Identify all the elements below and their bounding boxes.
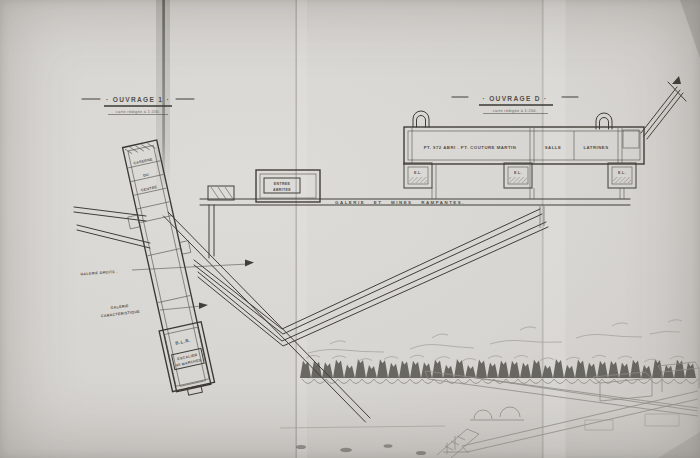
enceinte-chevrons bbox=[194, 206, 548, 346]
gallery-upper bbox=[74, 207, 146, 221]
arrowhead-icon bbox=[245, 260, 254, 267]
tree-silhouettes bbox=[300, 359, 696, 378]
barracks-label: PT. 972 ABRI . PT. COUTURE MARTIN bbox=[424, 145, 517, 150]
fold-crease-center bbox=[295, 0, 297, 458]
tunnel-arches bbox=[470, 407, 524, 420]
exit-gallery bbox=[641, 76, 686, 139]
bush-marks bbox=[330, 320, 682, 344]
horizon-squiggle bbox=[490, 331, 680, 344]
gallery-start-box bbox=[208, 186, 234, 200]
stair-block: E.L. bbox=[608, 163, 636, 188]
stair-block-label: E.L. bbox=[514, 171, 522, 175]
room-label-2: DU bbox=[143, 173, 150, 178]
exit-end-tick bbox=[668, 82, 686, 101]
vertical-branch bbox=[209, 205, 214, 258]
chevron-upper bbox=[194, 209, 542, 334]
horizon-squiggle bbox=[308, 345, 474, 354]
room-salle-label: SALLE bbox=[545, 145, 562, 150]
fold-crease-left bbox=[162, 0, 165, 188]
paper-creases bbox=[156, 0, 700, 458]
stair-grid-block bbox=[623, 130, 639, 148]
fort-barracks: PT. 972 ABRI . PT. COUTURE MARTIN SALLE … bbox=[404, 111, 644, 164]
bottom-smudges bbox=[296, 444, 426, 455]
main-gallery-label: GALERIE ET MINES RAMPANTES. bbox=[335, 200, 465, 205]
gallery2-leader bbox=[160, 306, 202, 310]
left-subtitle-text: carte rédigée à 1:200. bbox=[116, 109, 160, 114]
gallery-annotations: GALERIE DROITE . GALERIE CARACTERISTIQUE bbox=[80, 260, 254, 319]
stair-block: E.L. bbox=[404, 163, 432, 188]
stair-block: E.L. bbox=[504, 163, 532, 188]
photo-corner-bottom-right bbox=[658, 432, 700, 458]
gallery-lower bbox=[77, 225, 150, 248]
gallery2-label-line2: CARACTERISTIQUE bbox=[101, 310, 141, 319]
blb-label: B.L.B. bbox=[175, 338, 191, 346]
turret-arch-left bbox=[413, 111, 429, 127]
stair-block-label: E.L. bbox=[618, 171, 626, 175]
chevron-lower bbox=[198, 222, 548, 346]
exit-flag-icon bbox=[672, 76, 681, 84]
photo-corner-top-right bbox=[680, 0, 700, 58]
entry-structure: ENTREE ABRITEE bbox=[256, 170, 320, 202]
right-title-text: · OUVRAGE D · bbox=[483, 95, 548, 102]
arrowhead-icon bbox=[199, 303, 208, 310]
entry-label-line1: ENTREE bbox=[274, 182, 291, 186]
room-label-3: CENTRE bbox=[141, 185, 158, 193]
entry-outer-wall bbox=[256, 170, 320, 202]
pencil-sketch bbox=[280, 320, 699, 458]
lower-stair-blocks: E.L. E.L. E.L. bbox=[404, 163, 636, 199]
left-title-block: · OUVRAGE 1 · carte rédigée à 1:200. bbox=[82, 96, 194, 115]
gallery1-label: GALERIE DROITE . bbox=[80, 270, 118, 277]
scanned-fortification-plan: · OUVRAGE 1 · carte rédigée à 1:200. CAS… bbox=[0, 0, 700, 458]
exit-gallery-lines bbox=[641, 87, 683, 139]
right-subtitle-text: carte rédigée à 1:200. bbox=[493, 108, 537, 113]
left-title-text: · OUVRAGE 1 · bbox=[106, 96, 170, 103]
gallery2-label-line1: GALERIE bbox=[110, 304, 129, 310]
stair-block-label: E.L. bbox=[414, 171, 422, 175]
plan-drawing: · OUVRAGE 1 · carte rédigée à 1:200. CAS… bbox=[0, 0, 700, 458]
entry-label-line2: ABRITEE bbox=[273, 188, 291, 192]
room-latrines-label: LATRINES bbox=[583, 145, 608, 150]
left-section: · OUVRAGE 1 · carte rédigée à 1:200. CAS… bbox=[74, 96, 370, 422]
side-annex-left bbox=[128, 215, 140, 229]
